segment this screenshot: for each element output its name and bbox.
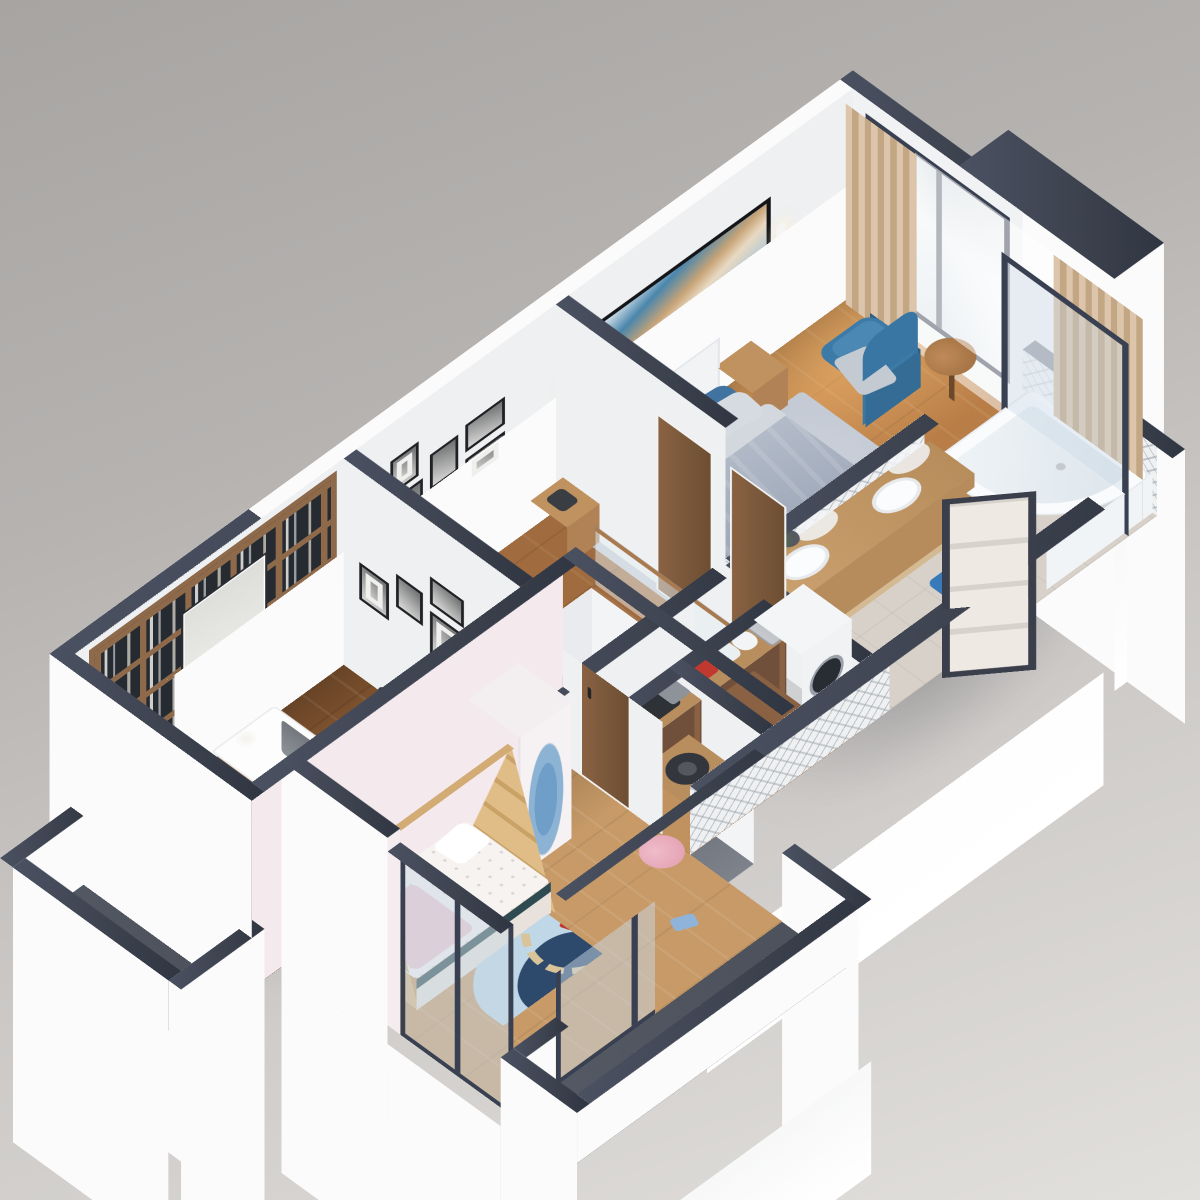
floorplan-3d-render: { "image_type": "isometric 3d cutaway fl… (0, 0, 1200, 1200)
hall-photo-frame (465, 431, 505, 489)
hall-photo-frame (396, 574, 423, 627)
bookshelf-pinboard (181, 551, 267, 739)
hall-photo-frame (430, 435, 458, 491)
door-handle (588, 686, 592, 700)
window-mullion (631, 839, 637, 1026)
hall-photo-frame (430, 576, 464, 628)
hall-photo-frame (359, 562, 389, 621)
wall-sconce (776, 220, 785, 247)
window-mullion (708, 783, 714, 970)
window-mullion (455, 887, 461, 1074)
